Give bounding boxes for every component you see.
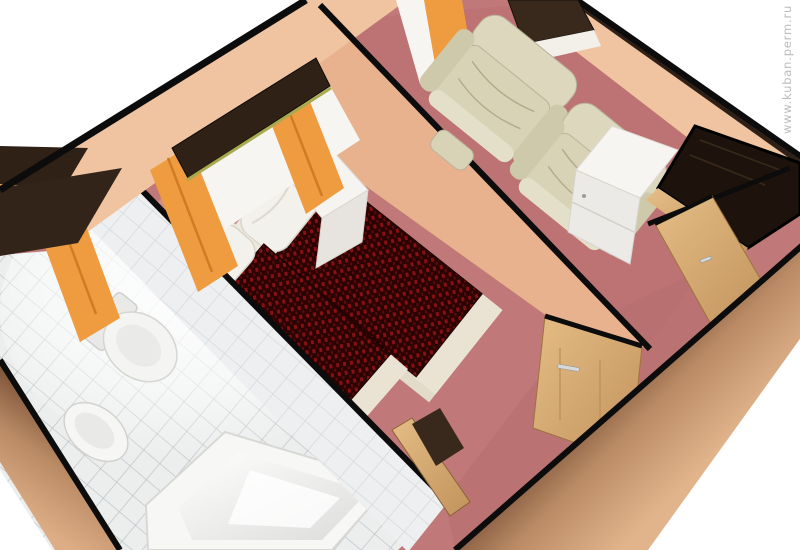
room-render: www.kuban.perm.ru: [0, 0, 800, 550]
watermark-text: www.kuban.perm.ru: [780, 5, 794, 134]
cabinet-handle: [582, 194, 586, 198]
